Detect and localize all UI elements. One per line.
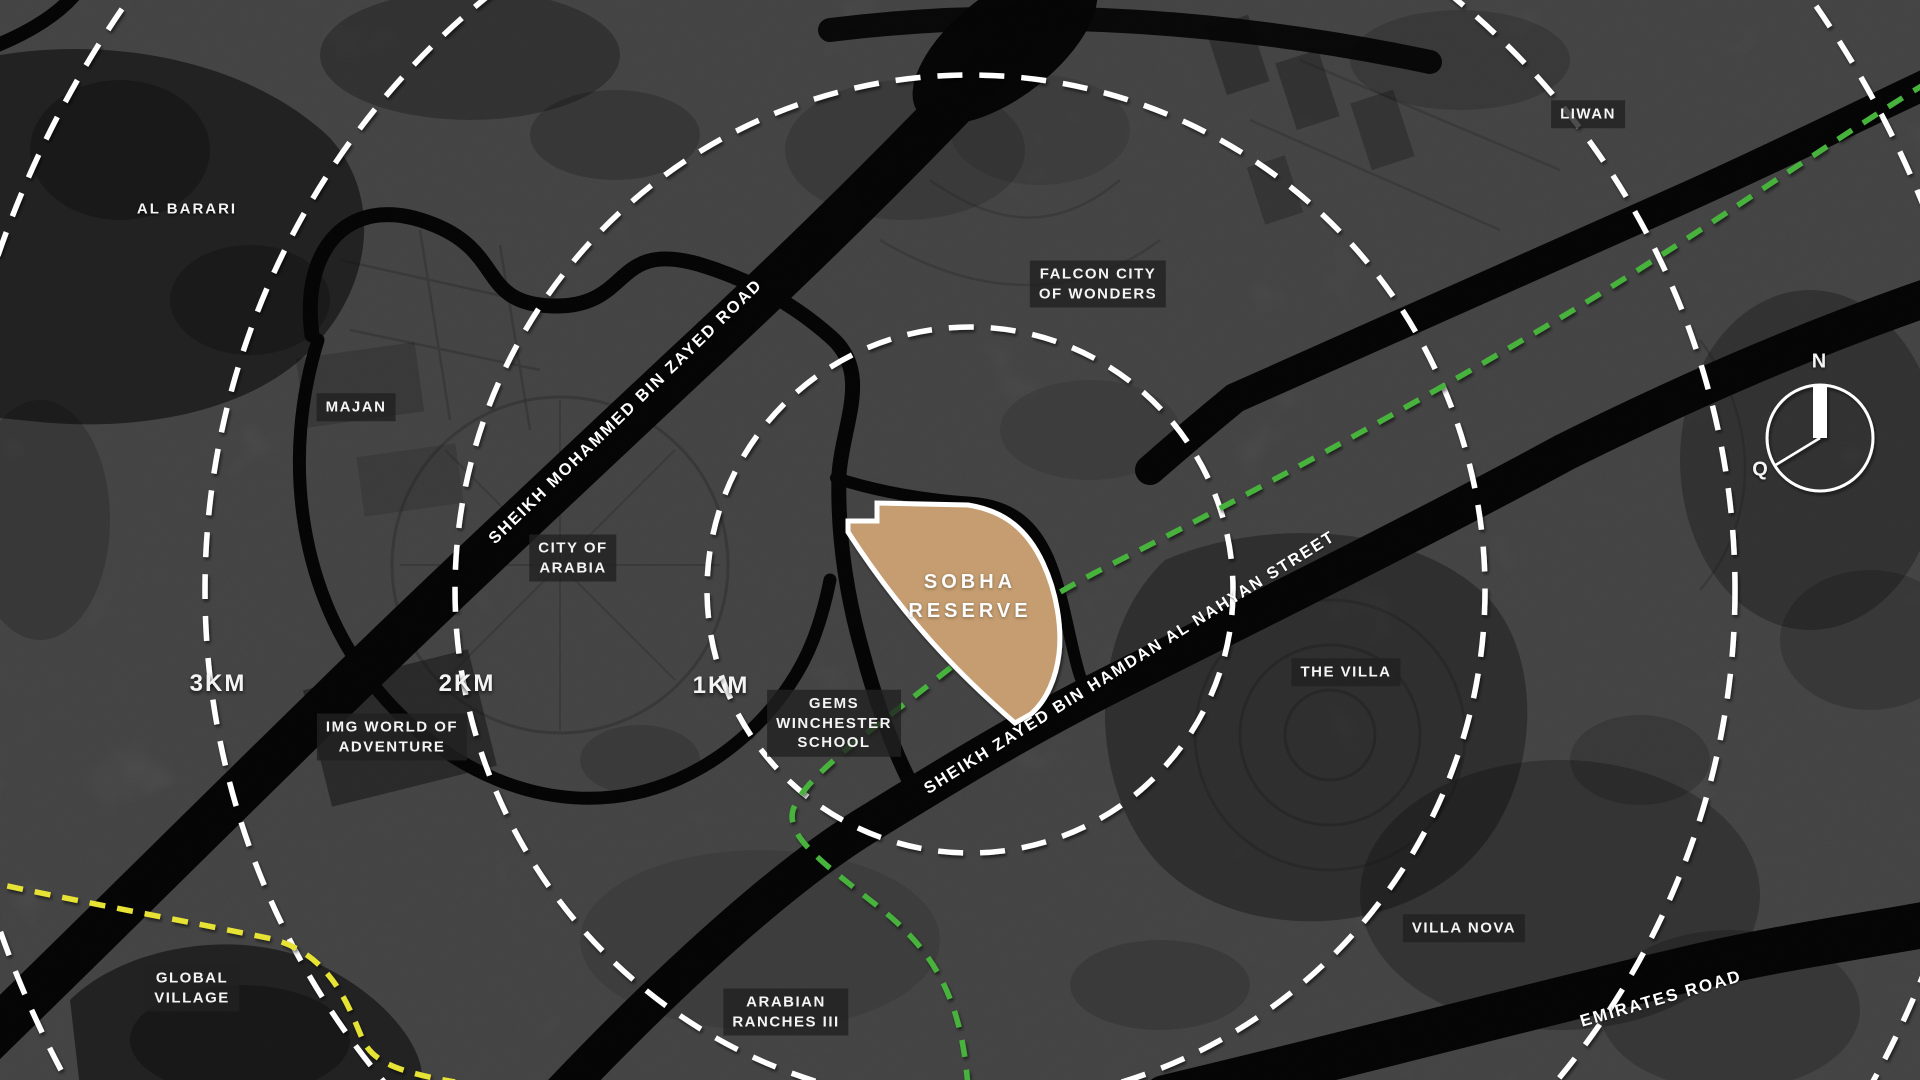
location-map: AL BARARI 3KM 2KM 1KM SOBHA RESERVE N Q … [0, 0, 1920, 1080]
label-global-village: GLOBAL VILLAGE [145, 965, 239, 1012]
label-al-barari: AL BARARI [137, 201, 237, 218]
label-ring-3km: 3KM [190, 670, 247, 698]
label-gems-school: GEMS WINCHESTER SCHOOL [767, 690, 901, 757]
label-the-villa: THE VILLA [1292, 658, 1401, 686]
label-falcon-city: FALCON CITY OF WONDERS [1030, 261, 1166, 308]
label-villa-nova: VILLA NOVA [1403, 914, 1525, 942]
label-img-world: IMG WORLD OF ADVENTURE [317, 714, 467, 761]
label-city-of-arabia: CITY OF ARABIA [529, 535, 616, 582]
label-liwan: LIWAN [1551, 100, 1625, 128]
label-sobha-reserve: SOBHA RESERVE [908, 568, 1031, 626]
label-arabian-ranches: ARABIAN RANCHES III [723, 989, 848, 1036]
compass-north-needle [1813, 384, 1827, 438]
label-ring-2km: 2KM [439, 670, 496, 698]
compass-north-label: N [1812, 351, 1826, 374]
label-majan: MAJAN [317, 393, 396, 421]
map-graphics [0, 0, 1920, 1080]
label-ring-1km: 1KM [693, 672, 750, 700]
compass-qibla-label: Q [1752, 459, 1768, 482]
